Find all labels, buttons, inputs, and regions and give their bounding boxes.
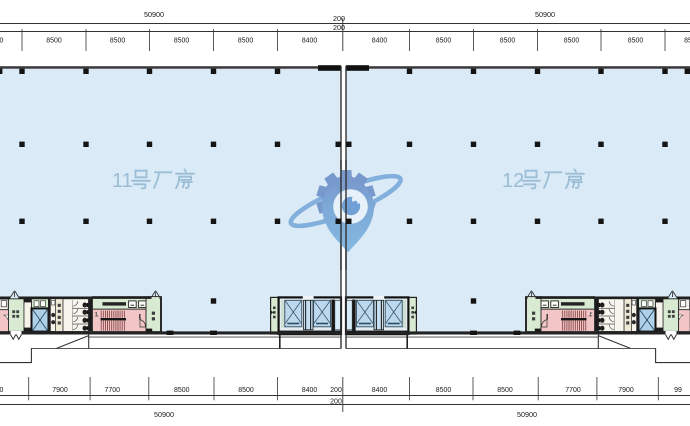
svg-text:8500: 8500 xyxy=(436,387,452,394)
svg-text:7900: 7900 xyxy=(618,387,634,394)
svg-text:11: 11 xyxy=(112,170,133,192)
svg-text:8400: 8400 xyxy=(372,387,388,394)
svg-text:12: 12 xyxy=(502,170,524,192)
svg-text:8500: 8500 xyxy=(436,38,452,45)
svg-text:50900: 50900 xyxy=(144,10,164,19)
svg-text:8500: 8500 xyxy=(500,38,516,45)
svg-text:50900: 50900 xyxy=(535,10,555,19)
svg-text:8500: 8500 xyxy=(110,38,126,45)
svg-text:0: 0 xyxy=(0,387,4,394)
svg-text:8400: 8400 xyxy=(302,38,318,45)
svg-text:8500: 8500 xyxy=(497,387,513,394)
svg-text:7900: 7900 xyxy=(52,387,68,394)
svg-text:200: 200 xyxy=(330,387,342,394)
svg-text:7700: 7700 xyxy=(565,387,581,394)
svg-text:8500: 8500 xyxy=(174,38,190,45)
svg-text:200: 200 xyxy=(330,398,342,405)
svg-text:8500: 8500 xyxy=(46,38,62,45)
svg-text:8400: 8400 xyxy=(372,38,388,45)
svg-text:50900: 50900 xyxy=(154,410,174,419)
svg-text:0: 0 xyxy=(0,38,4,45)
svg-text:99: 99 xyxy=(674,387,682,394)
svg-text:85: 85 xyxy=(684,38,690,45)
svg-text:200: 200 xyxy=(333,23,345,32)
svg-text:8500: 8500 xyxy=(238,387,254,394)
svg-text:8500: 8500 xyxy=(238,38,254,45)
svg-text:8500: 8500 xyxy=(564,38,580,45)
svg-text:7700: 7700 xyxy=(105,387,121,394)
svg-text:8500: 8500 xyxy=(628,38,644,45)
svg-text:50900: 50900 xyxy=(517,410,537,419)
svg-text:8400: 8400 xyxy=(302,387,318,394)
svg-text:200: 200 xyxy=(333,14,345,23)
svg-text:8500: 8500 xyxy=(174,387,190,394)
